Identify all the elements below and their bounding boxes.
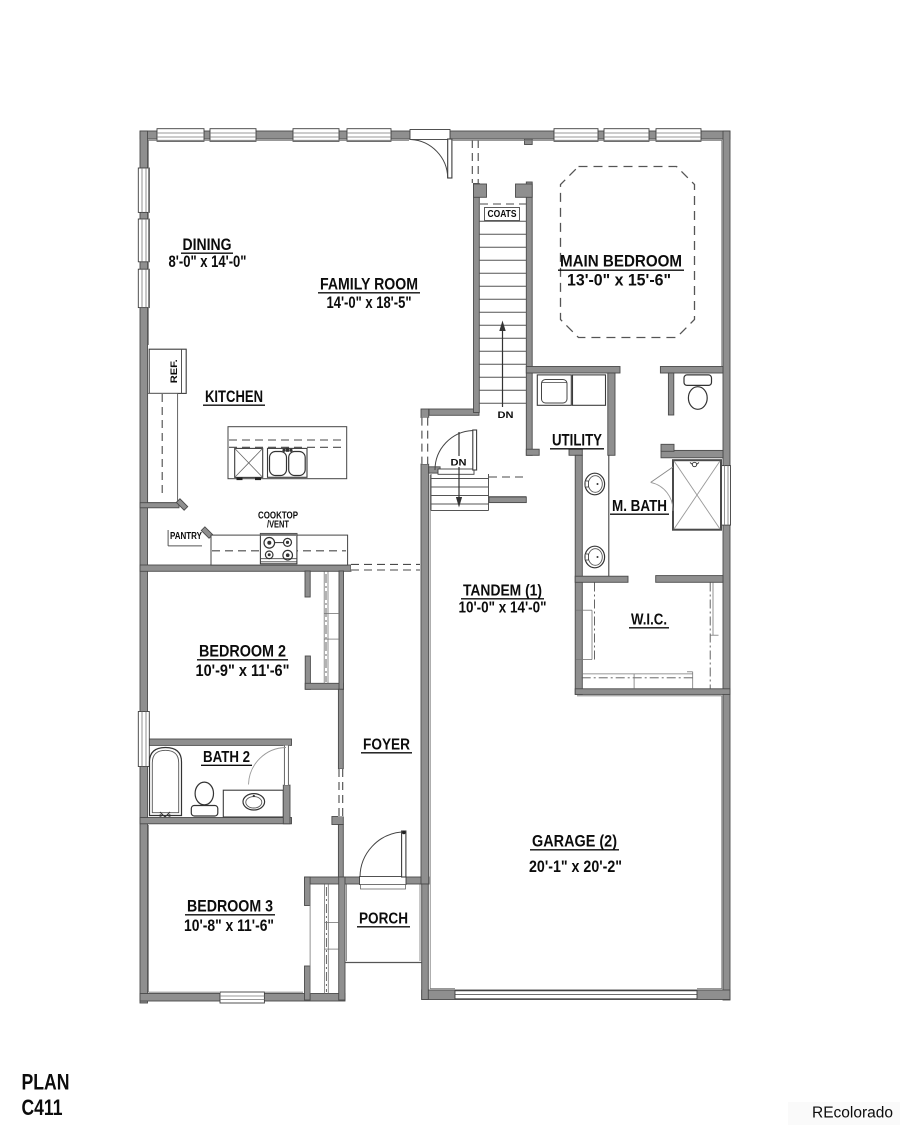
svg-text:BEDROOM 3: BEDROOM 3 [187, 898, 273, 916]
svg-text:14'-0" x 18'-5": 14'-0" x 18'-5" [327, 294, 412, 312]
svg-text:TANDEM (1): TANDEM (1) [463, 583, 542, 600]
svg-text:20'-1" x 20'-2": 20'-1" x 20'-2" [529, 858, 622, 876]
svg-text:PANTRY: PANTRY [170, 530, 202, 542]
svg-text:10'-8" x 11'-6": 10'-8" x 11'-6" [184, 917, 274, 935]
svg-text:FOYER: FOYER [363, 737, 410, 754]
svg-text:REcolorado: REcolorado [812, 1105, 893, 1122]
svg-text:PORCH: PORCH [359, 911, 408, 928]
svg-text:8'-0" x 14'-0": 8'-0" x 14'-0" [169, 253, 247, 271]
svg-text:W.I.C.: W.I.C. [631, 612, 667, 629]
svg-text:MAIN BEDROOM: MAIN BEDROOM [560, 252, 682, 271]
svg-text:KITCHEN: KITCHEN [205, 387, 263, 406]
svg-text:10'-9" x 11'-6": 10'-9" x 11'-6" [196, 662, 290, 680]
svg-text:BATH 2: BATH 2 [203, 749, 250, 766]
svg-text:/VENT: /VENT [267, 520, 289, 531]
svg-text:BEDROOM 2: BEDROOM 2 [199, 643, 286, 661]
svg-text:REF.: REF. [169, 359, 180, 383]
svg-text:COATS: COATS [488, 209, 517, 220]
svg-text:UTILITY: UTILITY [552, 431, 603, 450]
svg-text:DN: DN [451, 458, 467, 469]
svg-text:GARAGE (2): GARAGE (2) [532, 833, 617, 851]
svg-text:PLAN: PLAN [22, 1070, 70, 1095]
svg-text:M. BATH: M. BATH [612, 498, 667, 515]
svg-text:DINING: DINING [183, 235, 232, 254]
svg-text:10'-0" x 14'-0": 10'-0" x 14'-0" [459, 600, 547, 617]
svg-text:FAMILY ROOM: FAMILY ROOM [320, 275, 418, 294]
svg-text:DN: DN [498, 410, 514, 421]
svg-text:13'-0" x 15'-6": 13'-0" x 15'-6" [567, 272, 671, 290]
svg-text:C411: C411 [22, 1095, 63, 1120]
